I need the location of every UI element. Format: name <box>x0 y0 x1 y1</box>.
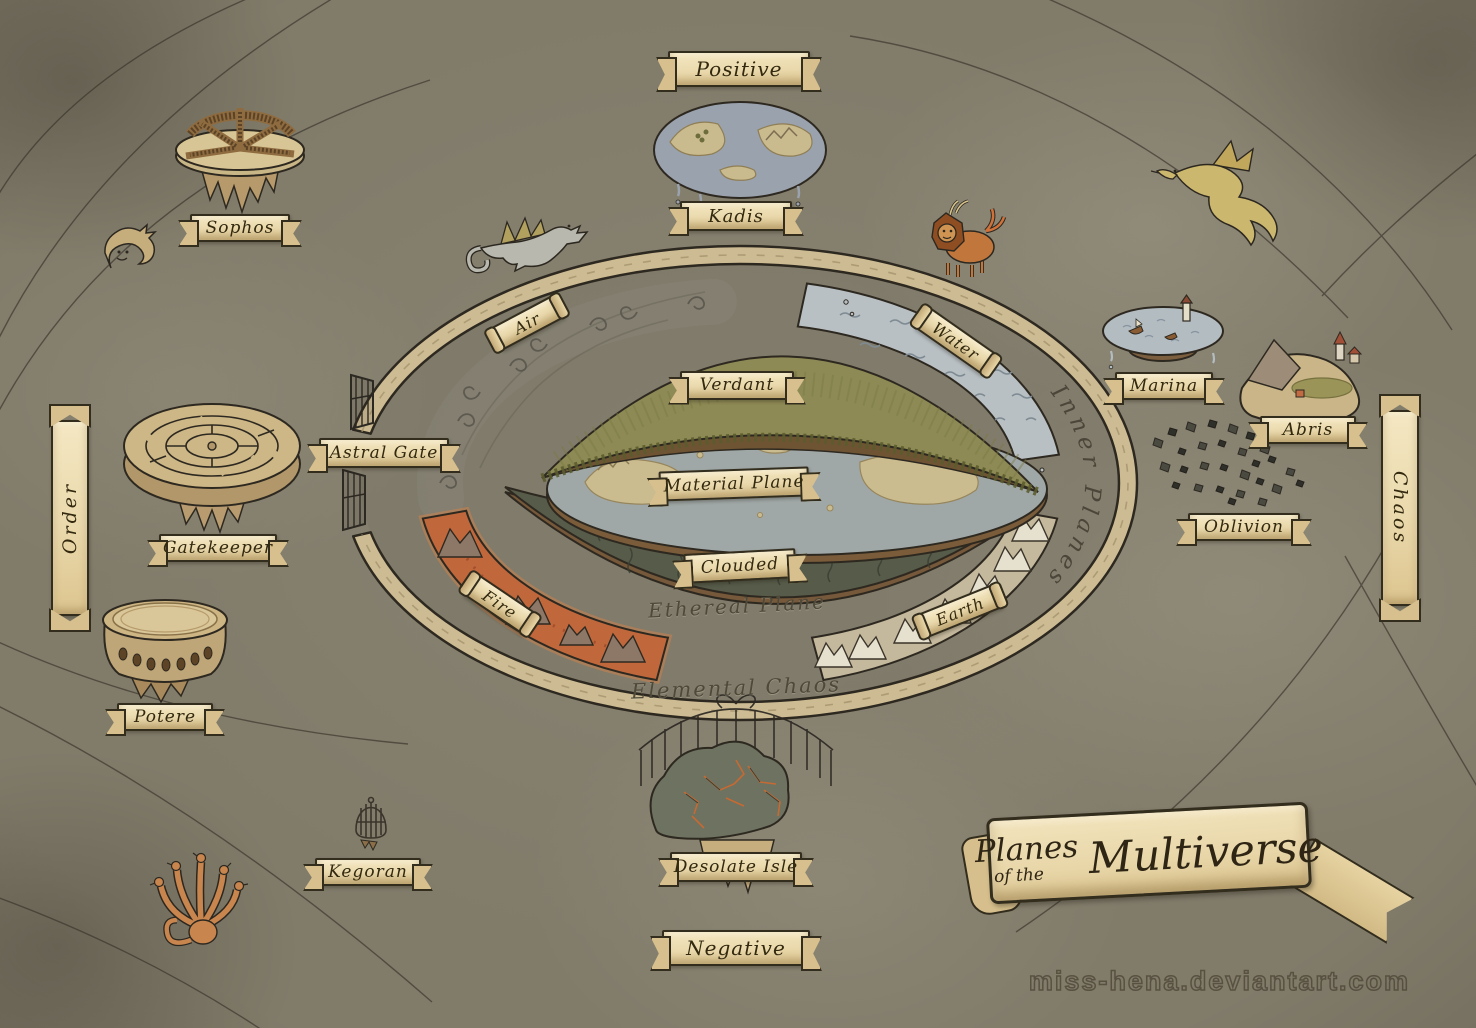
negative-label: Negative <box>686 936 786 960</box>
sophos-label: Sophos <box>206 218 275 238</box>
title-banner: Planes of the Multiverse <box>986 802 1312 905</box>
banner-desolate-isle: Desolate Isle <box>670 852 802 882</box>
island-gatekeeper-maze <box>124 404 300 532</box>
banner-kegoran: Kegoran <box>315 858 421 886</box>
kadis-label: Kadis <box>708 206 764 227</box>
title-word-planes: Planes <box>974 832 1079 868</box>
verdant-label: Verdant <box>700 375 775 395</box>
banner-oblivion: Oblivion <box>1188 513 1300 541</box>
gatekeeper-label: Gatekeeper <box>163 538 273 558</box>
banner-negative: Negative <box>662 930 810 966</box>
silver-dragon <box>469 218 587 271</box>
material-plane-label: Material Plane <box>663 472 805 497</box>
marina-label: Marina <box>1130 376 1198 396</box>
hydra <box>150 853 248 944</box>
astral-gate-label: Astral Gate <box>330 443 439 463</box>
island-marina <box>1103 295 1223 369</box>
banner-gatekeeper: Gatekeeper <box>159 534 277 562</box>
banner-chaos: Chaos <box>1381 410 1419 606</box>
island-sophos <box>176 108 304 212</box>
banner-potere: Potere <box>117 703 213 731</box>
oblivion-label: Oblivion <box>1204 517 1284 537</box>
island-abris <box>1240 332 1361 428</box>
order-label: Order <box>59 482 81 554</box>
banner-material-plane: Material Plane <box>659 466 810 501</box>
manticore <box>932 201 1004 277</box>
kegoran-label: Kegoran <box>328 862 408 882</box>
island-potere-colosseum <box>103 600 227 702</box>
planes-of-the-multiverse-map: Inner Planes <box>0 0 1476 1028</box>
positive-label: Positive <box>696 57 783 81</box>
banner-marina: Marina <box>1115 372 1213 400</box>
banner-verdant: Verdant <box>680 371 794 400</box>
clouded-label: Clouded <box>700 554 779 578</box>
chaos-label: Chaos <box>1389 471 1411 545</box>
island-kadis <box>654 102 826 206</box>
title-word-multiverse: Multiverse <box>1088 822 1325 884</box>
title-left-stack: Planes of the <box>974 832 1080 887</box>
potere-label: Potere <box>134 707 196 727</box>
banner-positive: Positive <box>668 51 810 87</box>
desolate-isle-label: Desolate Isle <box>674 857 798 877</box>
banner-sophos: Sophos <box>190 214 290 242</box>
regoran-cage <box>356 798 386 851</box>
gold-dragon <box>1151 141 1277 245</box>
banner-abris: Abris <box>1260 416 1356 444</box>
artist-watermark: miss-hena.deviantart.com <box>1029 966 1410 997</box>
banner-clouded: Clouded <box>683 548 796 584</box>
banner-kadis: Kadis <box>680 201 792 231</box>
abris-label: Abris <box>1283 420 1333 440</box>
banner-astral-gate: Astral Gate <box>319 438 449 468</box>
banner-order: Order <box>51 420 89 616</box>
